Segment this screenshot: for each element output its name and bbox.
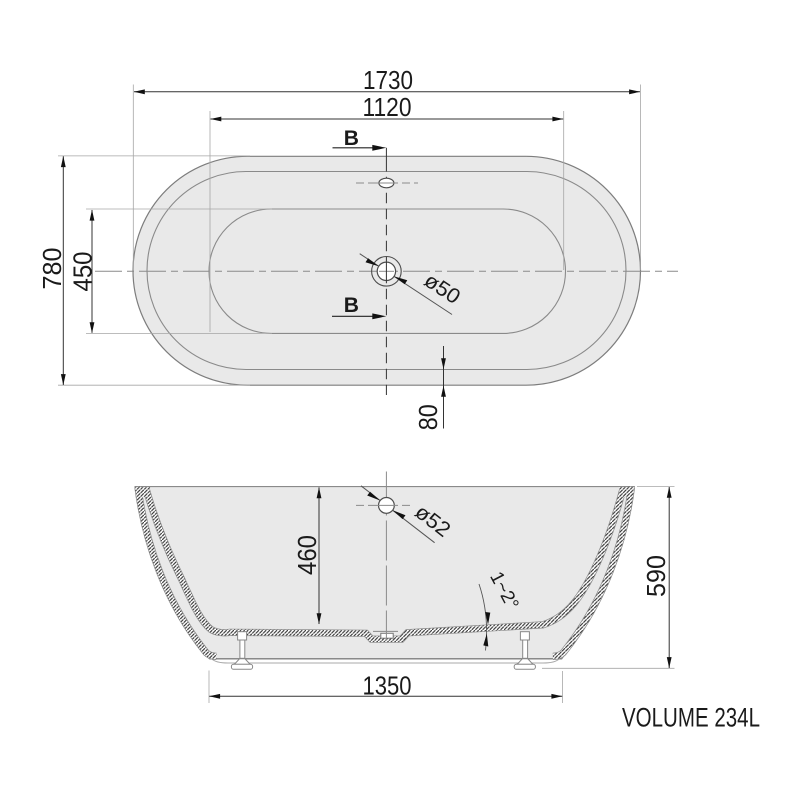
svg-text:80: 80	[413, 404, 443, 430]
svg-text:1120: 1120	[363, 92, 412, 122]
svg-text:B: B	[344, 127, 359, 150]
svg-text:590: 590	[641, 555, 671, 597]
svg-text:1730: 1730	[363, 65, 413, 95]
svg-text:780: 780	[37, 248, 67, 290]
svg-text:460: 460	[292, 535, 322, 575]
svg-text:B: B	[344, 294, 359, 317]
svg-text:450: 450	[68, 252, 98, 292]
svg-text:1350: 1350	[363, 671, 412, 701]
svg-text:VOLUME 234L: VOLUME 234L	[622, 702, 760, 732]
